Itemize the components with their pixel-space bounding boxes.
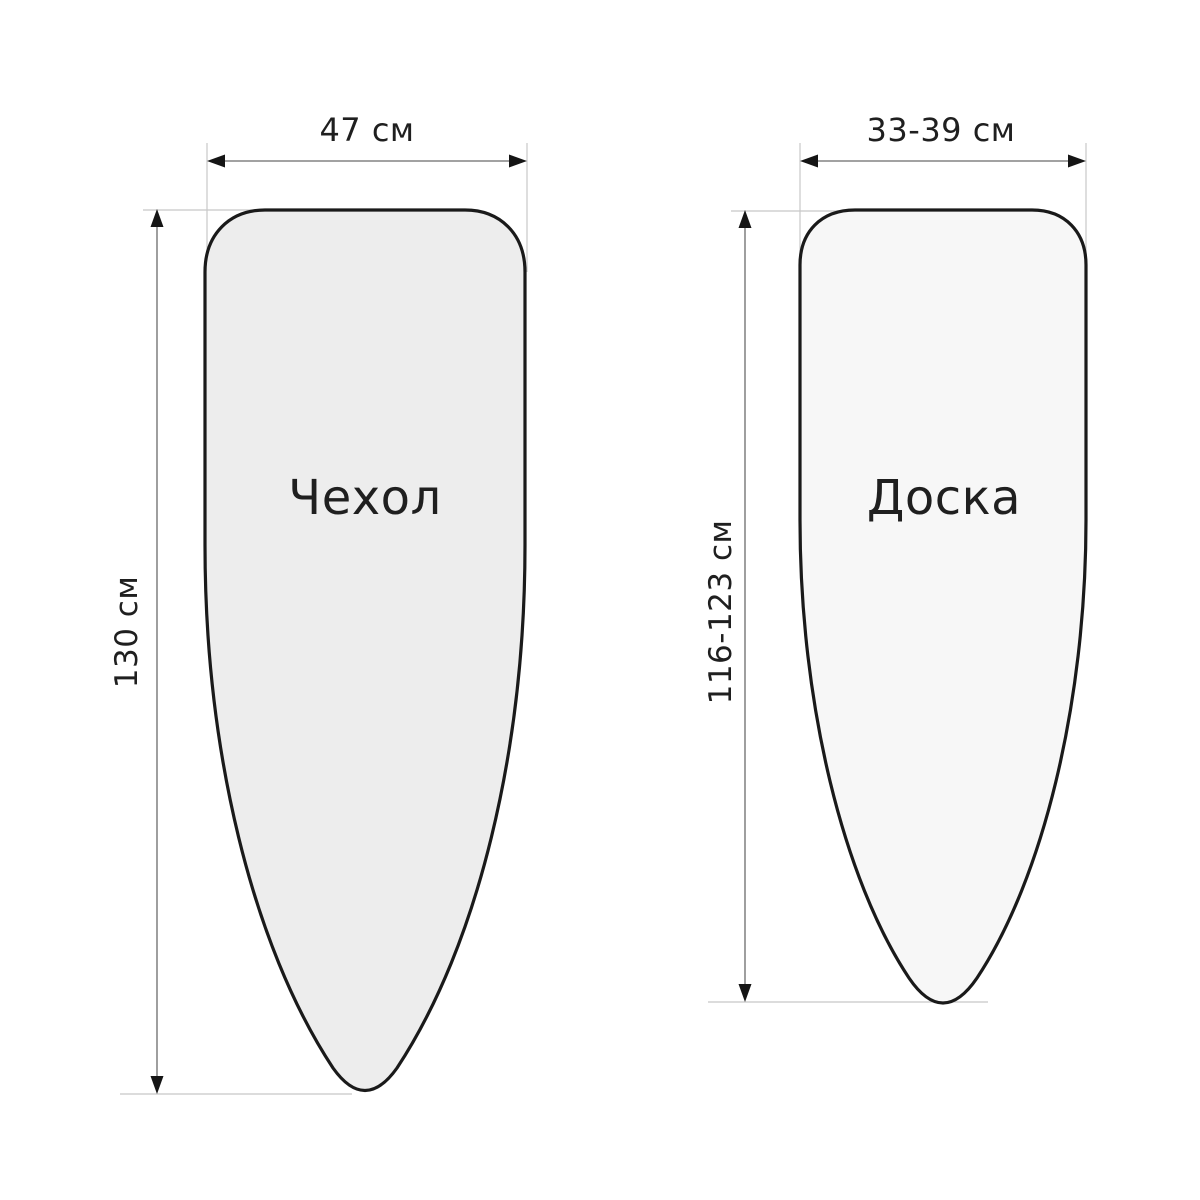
arrow-right-icon: [509, 155, 527, 168]
arrow-down-icon: [739, 984, 752, 1002]
arrow-left-icon: [800, 155, 818, 168]
size-comparison-diagram: 47 см 130 см Чехол: [0, 0, 1200, 1200]
cover-label: Чехол: [288, 470, 441, 526]
board-height-dimension: 116-123 см: [703, 210, 752, 1002]
arrow-up-icon: [739, 210, 752, 228]
board-figure: 33-39 см 116-123 см Доска: [703, 111, 1086, 1003]
board-shape: [800, 210, 1086, 1003]
diagram-canvas: 47 см 130 см Чехол: [0, 0, 1200, 1200]
cover-figure: 47 см 130 см Чехол: [109, 111, 527, 1094]
arrow-left-icon: [207, 155, 225, 168]
board-width-dimension: 33-39 см: [800, 111, 1086, 168]
cover-width-label: 47 см: [319, 111, 414, 149]
cover-shape: [205, 210, 525, 1091]
board-label: Доска: [867, 470, 1021, 526]
cover-height-label: 130 см: [109, 576, 145, 688]
cover-height-dimension: 130 см: [109, 209, 164, 1094]
cover-width-dimension: 47 см: [207, 111, 527, 168]
board-width-label: 33-39 см: [867, 111, 1016, 149]
arrow-down-icon: [151, 1076, 164, 1094]
arrow-up-icon: [151, 209, 164, 227]
arrow-right-icon: [1068, 155, 1086, 168]
board-height-label: 116-123 см: [703, 520, 739, 705]
